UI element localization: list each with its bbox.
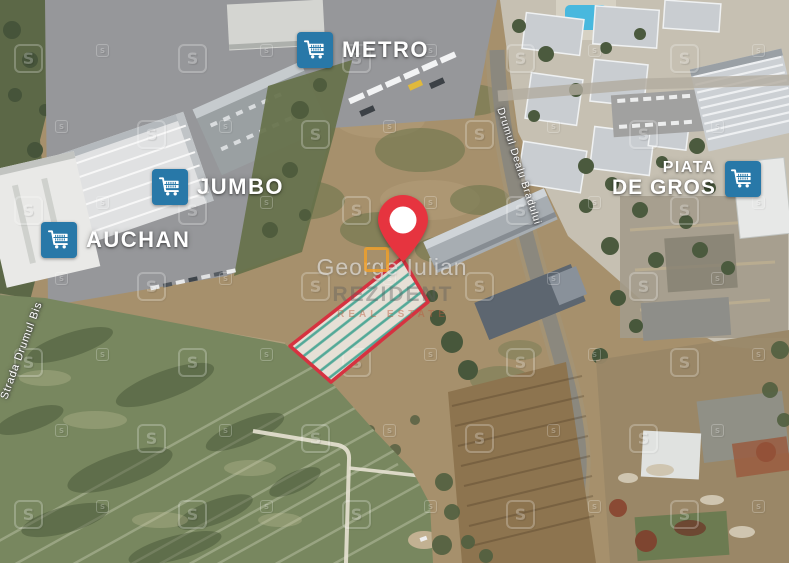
plot-outline bbox=[290, 258, 428, 382]
store-marker-label: PIATA DE GROS bbox=[612, 160, 716, 199]
satellite-map: SSSSSSSSSSSSSSSSSSSSSSSSSSSSSSSSSSSSSSSS… bbox=[0, 0, 789, 563]
property-plot-highlight bbox=[0, 0, 789, 563]
shopping-cart-icon bbox=[41, 222, 77, 258]
store-marker-label: METRO bbox=[342, 37, 429, 63]
shopping-cart-icon bbox=[297, 32, 333, 68]
store-marker-label-line1: PIATA bbox=[663, 160, 716, 177]
store-marker-auchan[interactable]: AUCHAN bbox=[41, 222, 190, 258]
store-marker-label-line2: DE GROS bbox=[612, 177, 716, 199]
shopping-cart-icon bbox=[152, 169, 188, 205]
store-marker-metro[interactable]: METRO bbox=[297, 32, 429, 68]
shopping-cart-icon bbox=[725, 161, 761, 197]
store-marker-label: AUCHAN bbox=[86, 227, 190, 253]
location-pin[interactable] bbox=[376, 194, 430, 264]
store-marker-label: JUMBO bbox=[197, 174, 284, 200]
store-marker-piata-de-gros[interactable]: PIATA DE GROS bbox=[612, 160, 761, 199]
store-marker-jumbo[interactable]: JUMBO bbox=[152, 169, 284, 205]
